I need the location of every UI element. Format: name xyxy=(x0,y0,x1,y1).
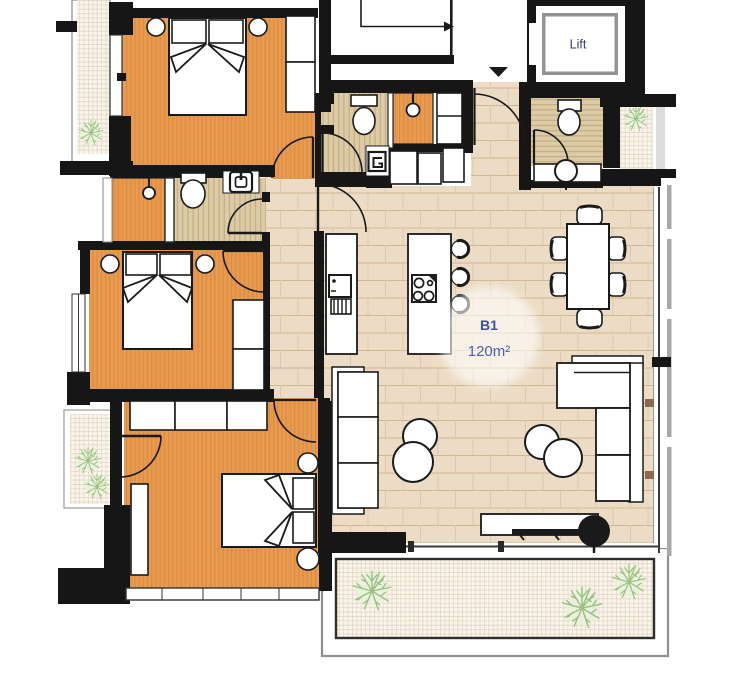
svg-text:120m²: 120m² xyxy=(468,343,511,360)
svg-text:Lift: Lift xyxy=(570,38,587,52)
svg-text:B1: B1 xyxy=(480,317,498,333)
